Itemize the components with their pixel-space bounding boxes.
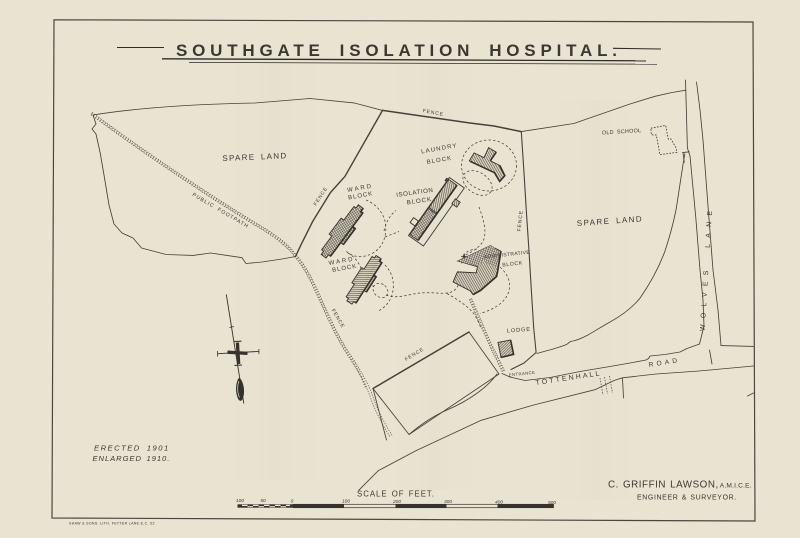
svg-text:0: 0 <box>291 499 294 505</box>
svg-text:SCALE OF FEET.: SCALE OF FEET. <box>357 490 435 499</box>
svg-text:50: 50 <box>260 498 266 504</box>
svg-text:SHAW & SONS. LITH. FETTER LANE: SHAW & SONS. LITH. FETTER LANE E.C. 52 <box>69 522 155 526</box>
svg-text:200: 200 <box>392 499 401 505</box>
svg-text:SOUTHGATE ISOLATION HOSPITAL.: SOUTHGATE ISOLATION HOSPITAL. <box>176 41 622 60</box>
svg-text:100: 100 <box>236 498 244 504</box>
svg-text:500: 500 <box>548 500 556 506</box>
svg-text:300: 300 <box>444 499 452 505</box>
svg-text:ENGINEER & SURVEYOR.: ENGINEER & SURVEYOR. <box>637 495 737 502</box>
svg-text:ERECTED 1901: ERECTED 1901 <box>94 444 170 453</box>
svg-text:ENLARGED 1910.: ENLARGED 1910. <box>93 454 171 463</box>
svg-text:400: 400 <box>495 500 503 506</box>
svg-text:100: 100 <box>342 499 350 505</box>
